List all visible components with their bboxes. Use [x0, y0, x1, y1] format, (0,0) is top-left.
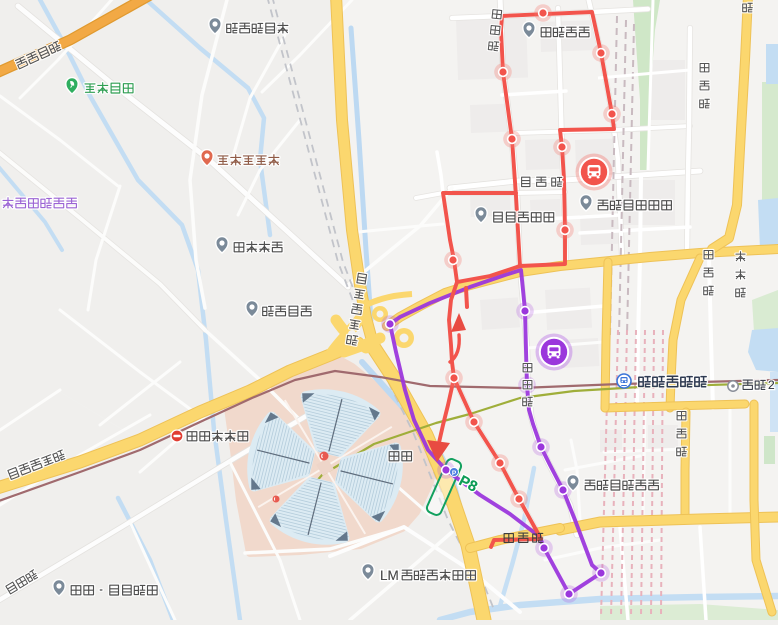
- svg-text:2: 2: [768, 378, 775, 392]
- svg-text:LM: LM: [380, 568, 399, 583]
- svg-text:P: P: [452, 470, 457, 477]
